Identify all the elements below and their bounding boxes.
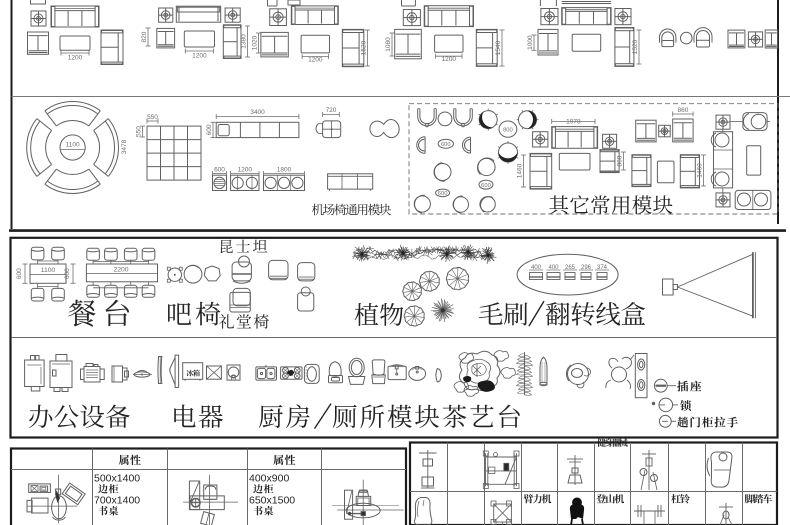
svg-text:1200: 1200	[68, 55, 83, 62]
svg-text:500x1400: 500x1400	[94, 473, 140, 485]
svg-text:800: 800	[503, 127, 513, 133]
svg-text:3478: 3478	[121, 139, 128, 154]
svg-text:1100: 1100	[66, 142, 80, 149]
svg-text:1200: 1200	[308, 57, 323, 64]
svg-text:1540: 1540	[495, 40, 502, 55]
svg-text:600: 600	[206, 124, 213, 135]
svg-text:1800: 1800	[277, 167, 292, 174]
svg-text:650x1500: 650x1500	[249, 495, 295, 507]
svg-text:1460: 1460	[517, 163, 524, 178]
svg-text:600: 600	[441, 142, 451, 148]
svg-text:1460: 1460	[697, 163, 704, 178]
svg-text:1100: 1100	[41, 267, 56, 274]
svg-text:860: 860	[677, 107, 688, 114]
svg-text:400x900: 400x900	[249, 473, 289, 485]
svg-text:1000: 1000	[527, 35, 534, 50]
svg-text:550: 550	[136, 126, 143, 137]
svg-text:700x1400: 700x1400	[94, 495, 140, 507]
svg-text:1978: 1978	[566, 118, 581, 125]
svg-text:3400: 3400	[250, 109, 265, 116]
svg-text:1520: 1520	[361, 40, 368, 55]
svg-text:600: 600	[64, 268, 71, 279]
svg-text:1200: 1200	[238, 167, 253, 174]
svg-text:1080: 1080	[385, 37, 392, 52]
svg-text:1020: 1020	[252, 35, 259, 50]
svg-text:600: 600	[214, 167, 225, 174]
svg-text:860: 860	[617, 155, 624, 166]
svg-text:820: 820	[141, 31, 148, 42]
svg-text:600: 600	[16, 268, 23, 279]
svg-text:720: 720	[326, 107, 337, 114]
svg-text:600: 600	[481, 183, 491, 189]
svg-text:1380: 1380	[241, 34, 248, 49]
svg-text:1200: 1200	[192, 53, 207, 60]
svg-text:550: 550	[147, 114, 158, 121]
svg-text:2200: 2200	[113, 267, 128, 274]
svg-text:600: 600	[438, 191, 448, 197]
svg-text:1520: 1520	[632, 39, 639, 54]
svg-text:1200: 1200	[442, 56, 457, 63]
